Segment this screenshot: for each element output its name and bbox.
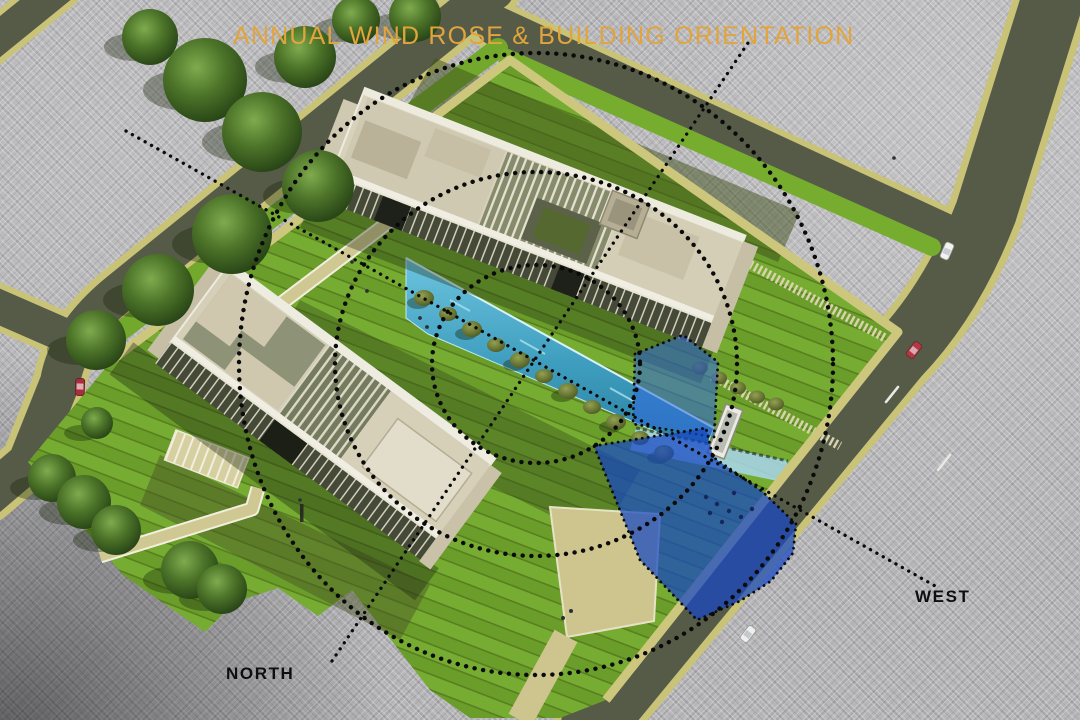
car-white-south [739, 625, 757, 644]
car-red-west [75, 378, 85, 395]
page-title: ANNUAL WIND ROSE & BUILDING ORIENTATION [233, 22, 854, 51]
canvas-texture-background: ANNUAL WIND ROSE & BUILDING ORIENTATION … [0, 0, 1080, 720]
west-label: WEST [915, 587, 971, 607]
north-label: NORTH [226, 664, 294, 684]
site-plan-svg [0, 0, 1080, 720]
